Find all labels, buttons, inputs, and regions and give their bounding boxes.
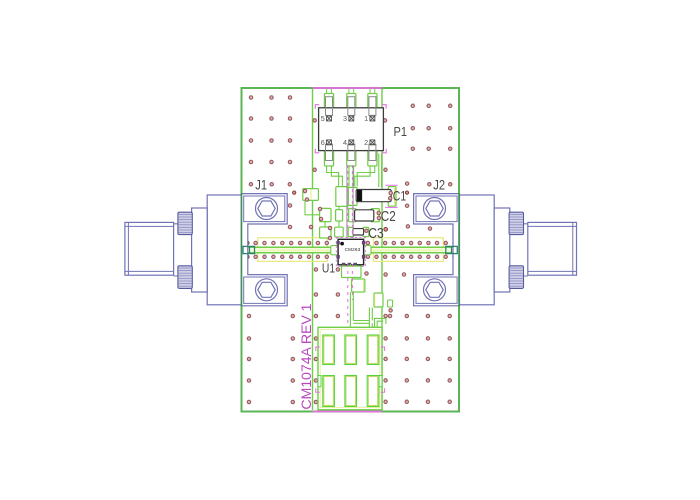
- svg-text:2: 2: [364, 138, 368, 147]
- svg-text:C3: C3: [368, 226, 384, 242]
- svg-text:1: 1: [364, 114, 368, 123]
- svg-text:CM263: CM263: [345, 247, 361, 252]
- svg-text:4: 4: [343, 138, 347, 147]
- svg-text:C1: C1: [393, 188, 407, 204]
- svg-text:U1: U1: [322, 261, 335, 276]
- svg-text:6: 6: [321, 138, 325, 147]
- svg-text:CM1074A REV 1: CM1074A REV 1: [299, 303, 315, 409]
- svg-text:C2: C2: [381, 209, 396, 225]
- svg-text:P1: P1: [394, 124, 408, 139]
- svg-text:5: 5: [321, 114, 325, 123]
- svg-text:J1: J1: [255, 177, 267, 193]
- svg-text:J2: J2: [433, 177, 445, 193]
- svg-text:3: 3: [343, 114, 347, 123]
